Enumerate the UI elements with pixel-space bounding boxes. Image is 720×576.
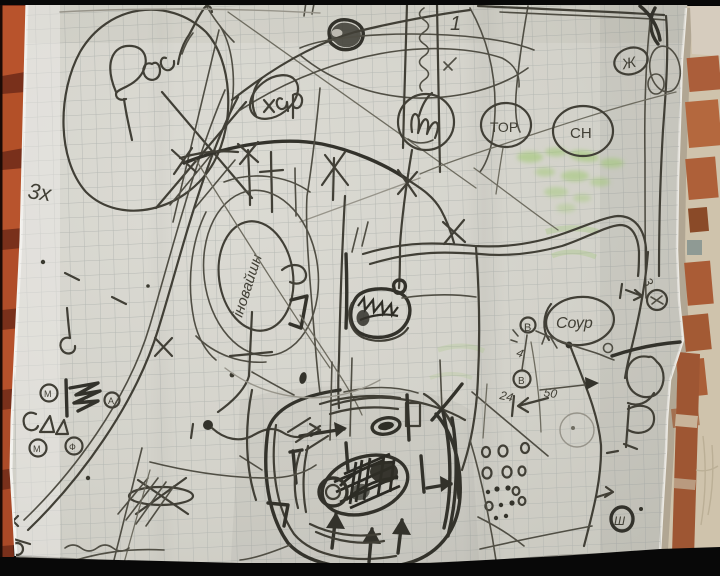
svg-text:М: М <box>33 444 41 454</box>
svg-text:Ш: Ш <box>614 514 626 528</box>
svg-text:Ф: Ф <box>69 442 76 452</box>
svg-text:В: В <box>518 376 525 387</box>
svg-text:А: А <box>108 396 114 406</box>
svg-text:1: 1 <box>450 13 461 35</box>
svg-text:ТОР: ТОР <box>490 119 518 135</box>
svg-text:В: В <box>524 322 531 334</box>
svg-text:СН: СН <box>570 125 592 142</box>
svg-text:Соур: Соур <box>556 315 593 332</box>
svg-text:М: М <box>44 389 52 399</box>
svg-text:3x: 3x <box>26 178 53 206</box>
